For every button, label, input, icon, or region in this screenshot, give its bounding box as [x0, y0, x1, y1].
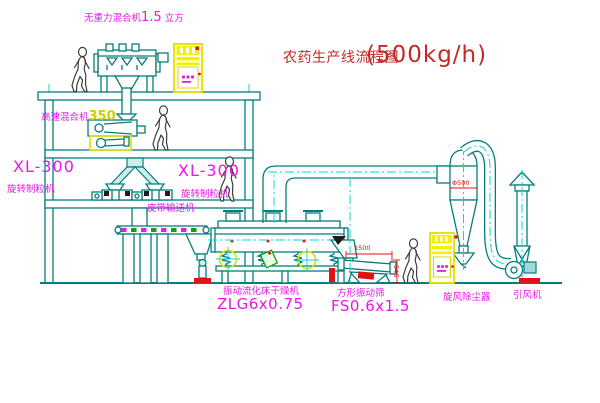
rotary-granulator-1	[92, 184, 132, 200]
label-belt-conveyor: 皮带输送机	[147, 204, 195, 214]
label-granulator-left-name: 旋转制粒机	[7, 185, 55, 195]
worker-figure-middle-floor	[153, 106, 170, 150]
label-granulator-right-name: 旋转制粒机	[181, 190, 229, 200]
granulator-discharge-duct	[132, 208, 147, 227]
panel-knob	[445, 265, 448, 268]
label-gravity-free-mixer-unit: 立方	[165, 13, 184, 24]
indicator-light	[198, 73, 201, 76]
dryer-feed-hopper	[186, 234, 213, 283]
exhaust-duct	[263, 166, 452, 223]
pesticide-line-flow-drawing: 无重力混合机1.5 立方 高速混合机350 XL-300 旋转制粒机 XL-30…	[0, 0, 600, 403]
dim-screen-height: 545	[393, 265, 400, 277]
dim-cyclone-diameter: Φ500	[452, 180, 470, 187]
fan-motor	[524, 262, 536, 273]
label-screen-model: FS0.6x1.5	[331, 299, 410, 314]
panel-knob	[186, 75, 189, 78]
drum	[261, 250, 278, 268]
label-high-speed-mixer: 高速混合机350	[41, 110, 116, 123]
dryer-exhaust-nozzles	[223, 211, 323, 221]
label-dryer-model: ZLG6x0.75	[217, 297, 304, 312]
label-high-speed-mixer-name: 高速混合机	[41, 112, 89, 123]
label-granulator-left-model: XL-300	[13, 159, 75, 175]
indicator-light	[451, 265, 454, 268]
y-branch-duct	[109, 158, 161, 186]
worker-figure-screen-area	[403, 239, 420, 283]
panel-knob	[437, 265, 440, 268]
label-gravity-free-mixer-name: 无重力混合机	[84, 13, 141, 24]
label-gravity-free-mixer-size: 1.5	[141, 10, 162, 25]
indicator-light	[196, 47, 200, 51]
label-fan: 引风机	[513, 291, 542, 301]
rotary-granulator-2	[132, 184, 172, 200]
drawing-capacity: (500kg/h)	[366, 44, 487, 67]
gravity-free-mixer	[94, 44, 168, 114]
worker-figure-top-floor	[72, 47, 89, 91]
control-cabinet-screen	[430, 233, 458, 283]
control-cabinet-top	[174, 44, 202, 92]
panel-knob	[441, 265, 444, 268]
indicator-light	[454, 235, 457, 238]
dim-screen-length: 1500	[354, 245, 371, 252]
label-granulator-right-model: XL-300	[178, 163, 240, 179]
label-cyclone: 旋风除尘器	[443, 293, 491, 303]
label-gravity-free-mixer: 无重力混合机1.5 立方	[84, 11, 184, 24]
panel-knob	[191, 75, 194, 78]
panel-knob	[182, 75, 185, 78]
vibration-motor	[358, 271, 375, 279]
label-high-speed-mixer-model: 350	[89, 109, 116, 124]
